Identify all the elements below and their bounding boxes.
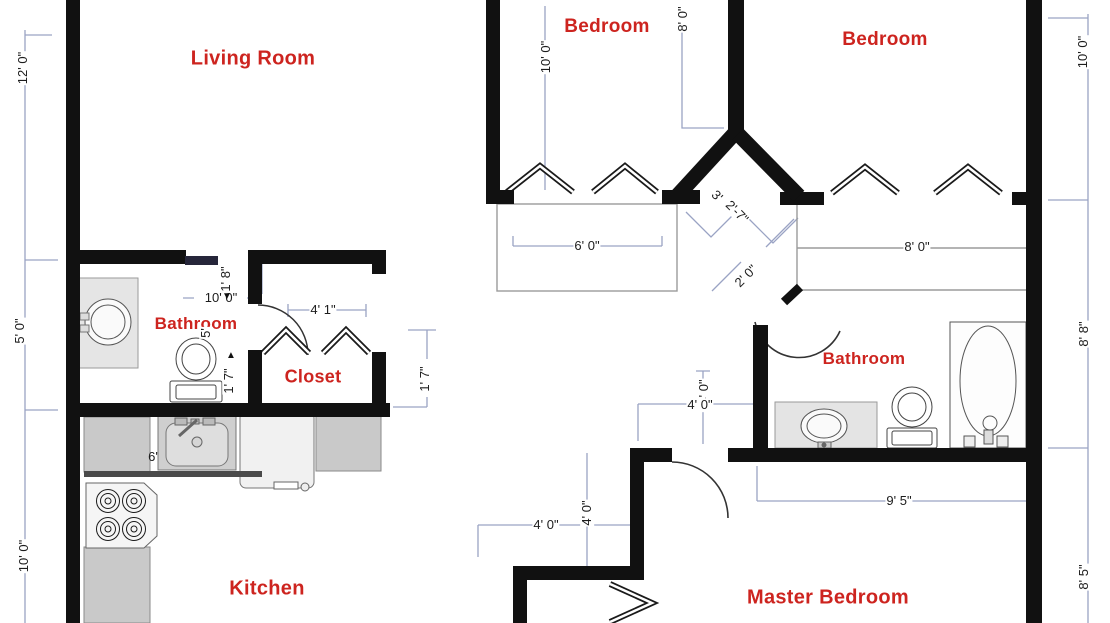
dim-hall-width: 4' 0" xyxy=(532,518,559,532)
counter-edge xyxy=(84,471,262,477)
room-label-master-bedroom: Master Bedroom xyxy=(747,587,909,610)
door-swing-icon xyxy=(672,462,728,518)
bathroom-left-fixtures xyxy=(79,278,222,402)
room-label-bathroom-right: Bathroom xyxy=(823,349,906,369)
dim-left-top: 12' 0" xyxy=(16,51,30,85)
door-jamb xyxy=(784,287,800,302)
toilet-icon xyxy=(170,338,222,402)
kitchen-sink-icon xyxy=(158,414,236,470)
bathroom-right-fixtures xyxy=(755,322,1026,448)
room-label-living-room: Living Room xyxy=(191,48,315,71)
dim-master-width: 9' 5" xyxy=(885,494,912,508)
dim-bathroom-left-door: 1' 8" xyxy=(219,265,233,292)
stove-icon xyxy=(86,483,157,548)
dim-bathroom-left-width: 10' 0" xyxy=(204,291,238,305)
room-label-bedroom-left: Bedroom xyxy=(564,16,650,38)
door-leaf xyxy=(185,256,218,265)
dim-right-bottom: 8' 5" xyxy=(1077,563,1091,590)
dim-bedroom-left-depth: 8' 0" xyxy=(676,5,690,32)
dishwasher-icon xyxy=(240,412,314,491)
dim-bedroom-left-height: 10' 0" xyxy=(539,40,553,74)
dim-closet-side-clear: 1' 7" xyxy=(418,365,432,392)
arrow-up-icon: ▲ xyxy=(226,351,236,361)
counter xyxy=(316,413,381,471)
dim-left-bottom: 10' 0" xyxy=(17,539,31,573)
arrow-down-icon: ▼ xyxy=(222,292,232,302)
dim-bathroom-right-width: 4' 0" xyxy=(686,398,713,412)
dim-kitchen-counter: 6' xyxy=(147,450,159,464)
room-label-bedroom-right: Bedroom xyxy=(842,29,928,51)
dim-left-mid: 5' 0" xyxy=(13,317,27,344)
dim-right-mid: 8' 8" xyxy=(1077,320,1091,347)
counter xyxy=(84,417,150,472)
dim-right-top: 10' 0" xyxy=(1076,35,1090,69)
toilet-icon xyxy=(887,387,937,448)
bathtub-icon xyxy=(950,322,1026,448)
floor-plan: Living Room Bedroom Bedroom Bathroom Clo… xyxy=(0,0,1110,623)
bifold-door-icon xyxy=(263,330,369,353)
room-label-closet: Closet xyxy=(285,367,342,388)
dim-closet-door: 4' 1" xyxy=(309,303,336,317)
counter xyxy=(84,547,150,623)
dim-closet-bedroom-right: 8' 0" xyxy=(903,240,930,254)
dim-hall-depth: 4' 0" xyxy=(580,499,594,526)
room-label-bathroom-left: Bathroom xyxy=(155,314,238,334)
dim-bathroom-left-partial: 5' xyxy=(199,327,213,339)
dim-bathroom-left-clear: 1' 7" xyxy=(222,367,236,394)
room-label-kitchen: Kitchen xyxy=(229,578,304,601)
dim-closet-bedroom-left: 6' 0" xyxy=(573,239,600,253)
